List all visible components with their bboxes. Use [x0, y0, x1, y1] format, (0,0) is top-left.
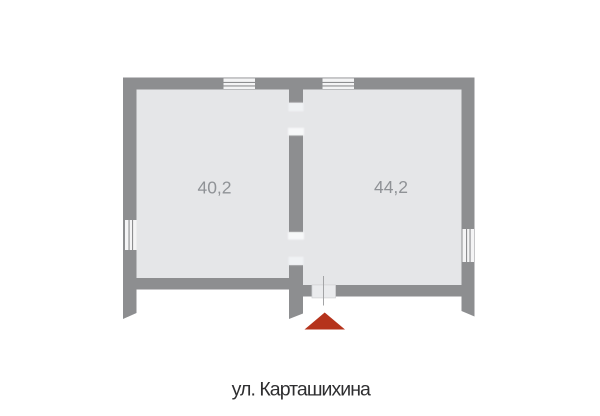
svg-text:44,2: 44,2 [374, 177, 408, 197]
svg-text:ул. Карташихина: ул. Карташихина [232, 379, 371, 401]
svg-text:40,2: 40,2 [197, 177, 231, 197]
